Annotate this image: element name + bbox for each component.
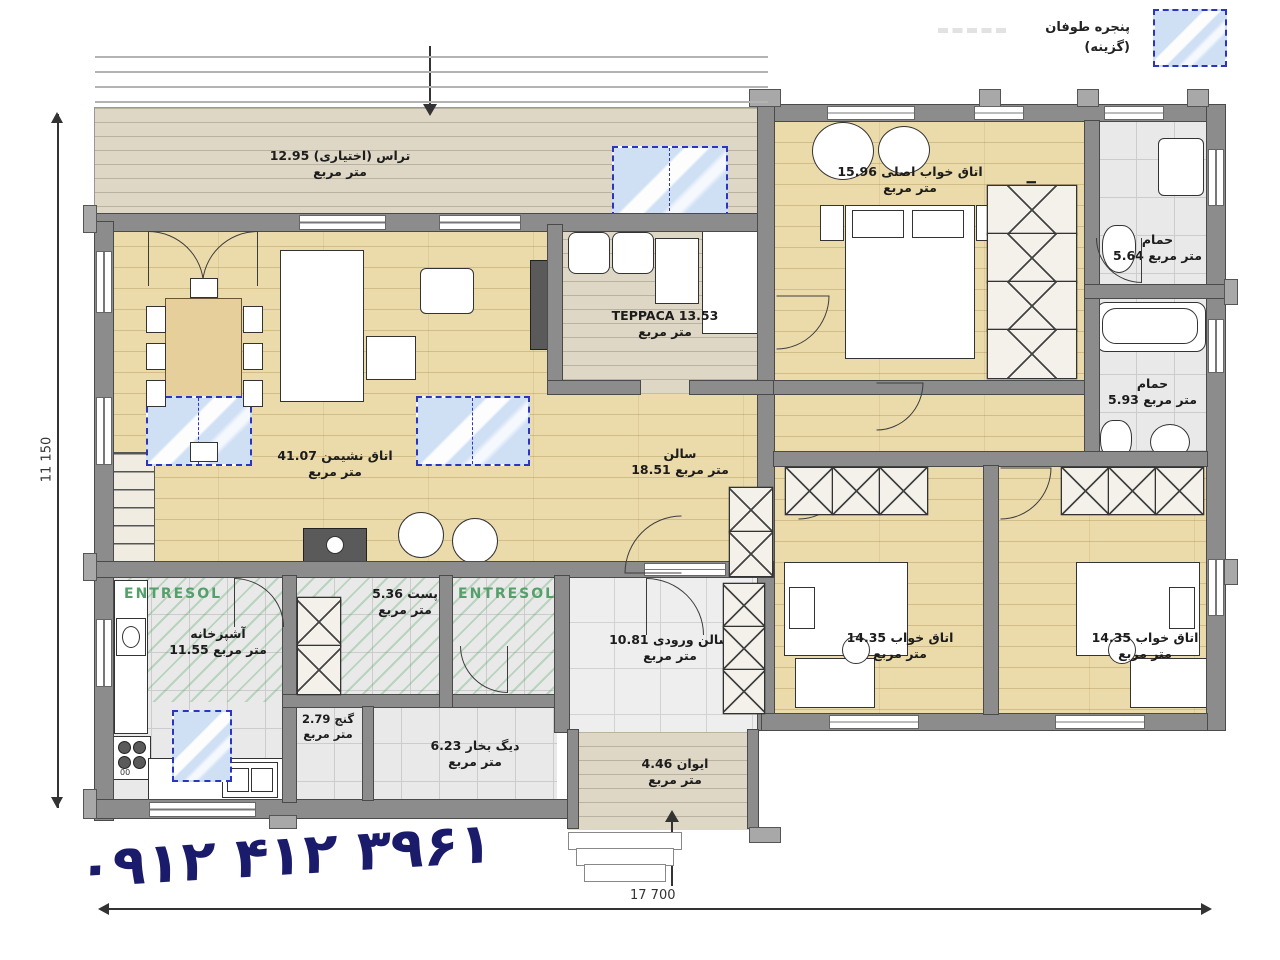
sink-basin bbox=[251, 768, 273, 792]
window bbox=[830, 716, 918, 728]
log-end bbox=[1225, 560, 1237, 584]
teppaca-chair-2 bbox=[612, 232, 654, 274]
room-label-bath-2: حمام متر مربع 5.93 bbox=[1105, 376, 1200, 409]
room-label-entry-hall: سالن ورودی 10.81 متر مربع bbox=[600, 632, 740, 665]
wardrobe-cell bbox=[880, 468, 927, 514]
wall bbox=[748, 730, 758, 828]
nightstand-1 bbox=[820, 205, 844, 241]
wall bbox=[1085, 285, 1225, 298]
log-end bbox=[84, 790, 96, 818]
sink-basin bbox=[122, 626, 140, 648]
window bbox=[300, 216, 385, 229]
kitchen-sink bbox=[116, 618, 146, 656]
log-end bbox=[84, 554, 96, 580]
deck-board-line bbox=[95, 101, 768, 103]
room-label-living-room: اتاق نشیمن 41.07 متر مربع bbox=[255, 448, 415, 481]
legend-subtitle: (گزینه) bbox=[1045, 38, 1130, 58]
wardrobe-cell bbox=[833, 468, 880, 514]
wall bbox=[548, 225, 562, 394]
window bbox=[1209, 320, 1223, 372]
bathtub-inner bbox=[1102, 308, 1198, 344]
wall bbox=[440, 576, 452, 707]
room-label-porch: ایوان 4.46 متر مربع bbox=[620, 756, 730, 789]
porch-step bbox=[584, 864, 666, 882]
dining-chair bbox=[243, 343, 263, 370]
room-label-teppaca: TEPPACA 13.53 متر مربع bbox=[595, 308, 735, 341]
window bbox=[828, 107, 914, 119]
arrow-up-icon bbox=[665, 810, 679, 822]
window bbox=[97, 398, 111, 464]
wardrobe-cell bbox=[988, 330, 1076, 378]
wall bbox=[568, 730, 578, 828]
staircase bbox=[113, 452, 155, 576]
dimension-height: 11 150 bbox=[39, 437, 54, 483]
log-end bbox=[1188, 90, 1208, 106]
stove-mark: 00 bbox=[120, 768, 130, 777]
wardrobe-cell bbox=[724, 627, 764, 670]
window bbox=[150, 803, 255, 816]
window bbox=[1209, 150, 1223, 205]
pillow bbox=[1169, 587, 1195, 629]
room-label-kitchen: آشپزخانه متر مربع 11.55 bbox=[158, 626, 278, 659]
wall bbox=[283, 576, 296, 802]
wardrobe-cell bbox=[730, 488, 772, 532]
wardrobe-cell bbox=[298, 646, 340, 694]
wardrobe-cell bbox=[988, 186, 1076, 234]
storm-window-marker bbox=[416, 396, 530, 466]
armchair bbox=[420, 268, 474, 314]
window bbox=[440, 216, 520, 229]
dimension-line-left bbox=[57, 114, 59, 808]
burner bbox=[118, 741, 131, 754]
kitchen-counter-left bbox=[114, 580, 148, 734]
dining-chair bbox=[146, 380, 166, 407]
legend-title: پنجره طوفان bbox=[1045, 18, 1130, 38]
desk-2 bbox=[1130, 658, 1210, 708]
log-end bbox=[750, 828, 780, 842]
dimension-line-bottom bbox=[100, 908, 1210, 910]
wardrobe-cell bbox=[298, 598, 340, 646]
legend: پنجره طوفان (گزینه) bbox=[1045, 18, 1130, 57]
wall bbox=[283, 695, 559, 707]
room-label-bedroom-2: اتاق خواب 14.35 متر مربع bbox=[1075, 630, 1215, 663]
wardrobe-cell bbox=[1109, 468, 1156, 514]
wardrobe-cell bbox=[724, 584, 764, 627]
room-label-salon: سالن متر مربع 18.51 bbox=[620, 446, 740, 479]
arrow-left-icon bbox=[98, 903, 109, 915]
deck-board-line bbox=[95, 86, 768, 88]
deck-board-line bbox=[95, 56, 768, 58]
log-end bbox=[1225, 280, 1237, 304]
log-end bbox=[84, 206, 96, 232]
log-end bbox=[270, 816, 296, 828]
coffee-table bbox=[366, 336, 416, 380]
arrow-down-icon bbox=[51, 797, 63, 808]
dining-chair bbox=[243, 306, 263, 333]
dining-chair bbox=[190, 278, 218, 298]
wall bbox=[774, 452, 1207, 466]
pillow bbox=[912, 210, 964, 238]
arrow-up-icon bbox=[51, 112, 63, 123]
bathtub bbox=[1096, 302, 1206, 352]
window bbox=[97, 252, 111, 312]
deck-board-line bbox=[95, 71, 768, 73]
window-pane-divider bbox=[472, 398, 473, 464]
stove-knob bbox=[326, 536, 344, 554]
wall bbox=[774, 381, 1098, 394]
room-label-terrace: تراس (اختیاری) 12.95 متر مربع bbox=[250, 148, 430, 181]
log-end bbox=[750, 90, 780, 106]
desk-1 bbox=[795, 658, 875, 708]
burner bbox=[133, 741, 146, 754]
dimension-width: 17 700 bbox=[630, 888, 676, 903]
burner bbox=[133, 756, 146, 769]
log-end bbox=[1078, 90, 1098, 106]
wardrobe-cell bbox=[988, 282, 1076, 330]
dining-chair bbox=[190, 442, 218, 462]
room-label-master-bedroom: اتاق خواب اصلی 15.96 متر مربع bbox=[825, 164, 995, 197]
dining-chair bbox=[146, 306, 166, 333]
window bbox=[1056, 716, 1144, 728]
room-label-closet: گنج 2.79 متر مربع bbox=[288, 712, 368, 742]
wall bbox=[548, 381, 640, 394]
wardrobe-cell bbox=[786, 468, 833, 514]
wall bbox=[690, 381, 774, 394]
wall bbox=[363, 707, 373, 800]
arrow-right-icon bbox=[1201, 903, 1212, 915]
teppaca-chair-1 bbox=[568, 232, 610, 274]
entresol-label-2: ENTRESOL bbox=[458, 586, 556, 602]
log-end bbox=[980, 90, 1000, 106]
storm-window-marker bbox=[172, 710, 232, 782]
bath-sink-1 bbox=[1158, 138, 1204, 196]
storm-window-marker bbox=[612, 146, 728, 218]
legend-leader-dash bbox=[938, 28, 1006, 33]
window bbox=[1209, 560, 1223, 615]
arrow-down-icon bbox=[423, 104, 437, 116]
wardrobe-cell bbox=[1062, 468, 1109, 514]
window-pane-divider bbox=[669, 148, 670, 216]
legend-storm-window-icon bbox=[1153, 9, 1227, 67]
wall bbox=[95, 214, 773, 231]
sofa bbox=[280, 250, 364, 402]
floor-plan: 00 پنجره طوفان (گزینه) تراس (اختیاری) 12… bbox=[0, 0, 1280, 960]
wardrobe-cell bbox=[988, 234, 1076, 282]
entresol-label-1: ENTRESOL bbox=[124, 586, 222, 602]
stool-2 bbox=[452, 518, 498, 564]
pillow bbox=[789, 587, 815, 629]
dining-chair bbox=[243, 380, 263, 407]
room-label-bedroom-1: اتاق خواب 14.35 متر مربع bbox=[830, 630, 970, 663]
wall bbox=[984, 466, 998, 714]
terrace-entry-arrow bbox=[429, 46, 431, 106]
dining-chair bbox=[146, 343, 166, 370]
pillow bbox=[852, 210, 904, 238]
wardrobe-cell bbox=[1156, 468, 1203, 514]
wardrobe-cell bbox=[730, 532, 772, 576]
stool-1 bbox=[398, 512, 444, 558]
wardrobe-cell bbox=[724, 670, 764, 713]
kitchen-stove: 00 bbox=[113, 736, 151, 780]
window bbox=[97, 620, 111, 686]
wall bbox=[555, 576, 569, 732]
master-bed bbox=[845, 205, 975, 359]
teppaca-table bbox=[655, 238, 699, 304]
room-label-boiler: دیگ بخار 6.23 متر مربع bbox=[415, 738, 535, 771]
window bbox=[1105, 107, 1163, 119]
window bbox=[975, 107, 1023, 119]
